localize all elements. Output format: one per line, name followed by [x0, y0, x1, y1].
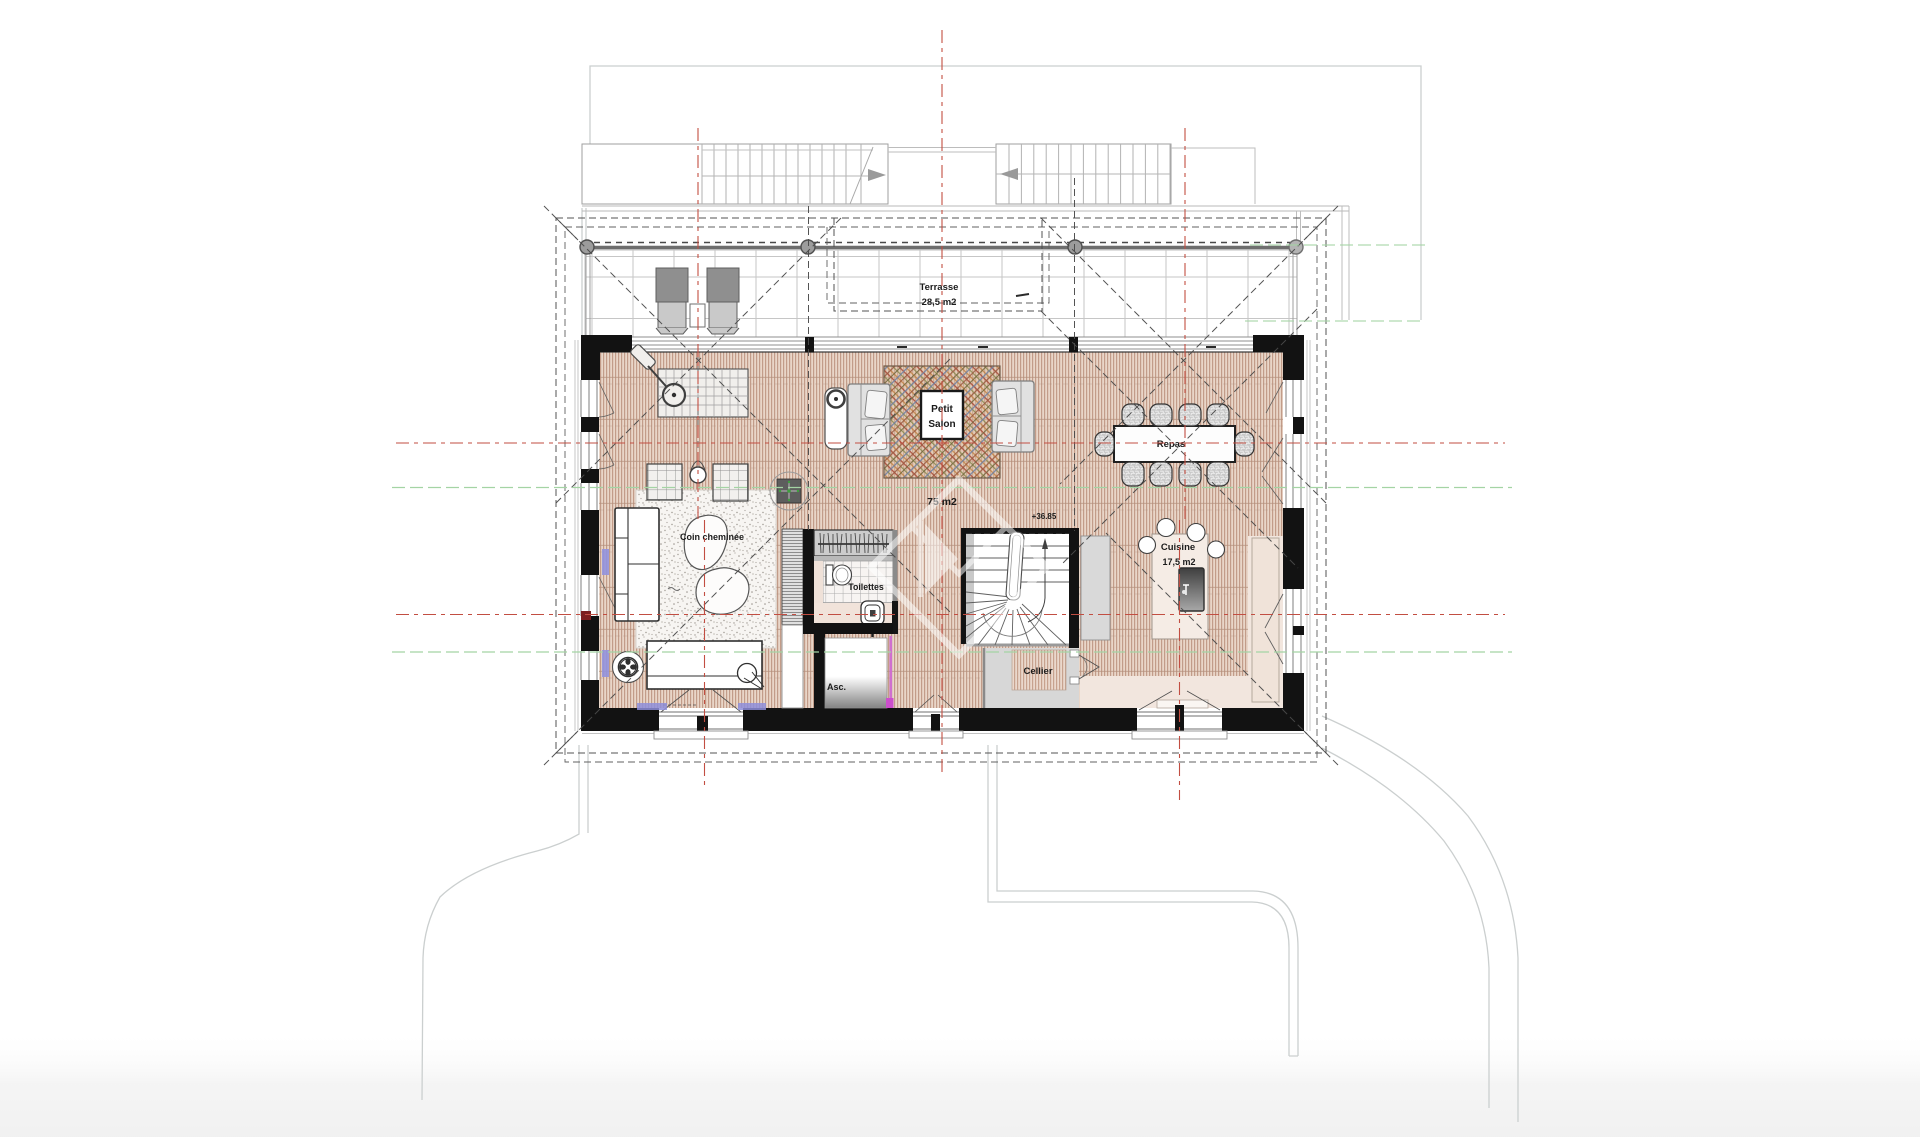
svg-text:Coin cheminée: Coin cheminée — [680, 532, 744, 542]
svg-text:Cuisine: Cuisine — [1161, 542, 1195, 553]
svg-text:28,5 m2: 28,5 m2 — [922, 297, 957, 308]
svg-text:Asc.: Asc. — [827, 682, 846, 692]
svg-text:+36.85: +36.85 — [1032, 512, 1057, 521]
svg-text:Toilettes: Toilettes — [848, 582, 884, 592]
svg-text:Terrasse: Terrasse — [920, 282, 959, 293]
svg-text:Cellier: Cellier — [1023, 666, 1052, 677]
